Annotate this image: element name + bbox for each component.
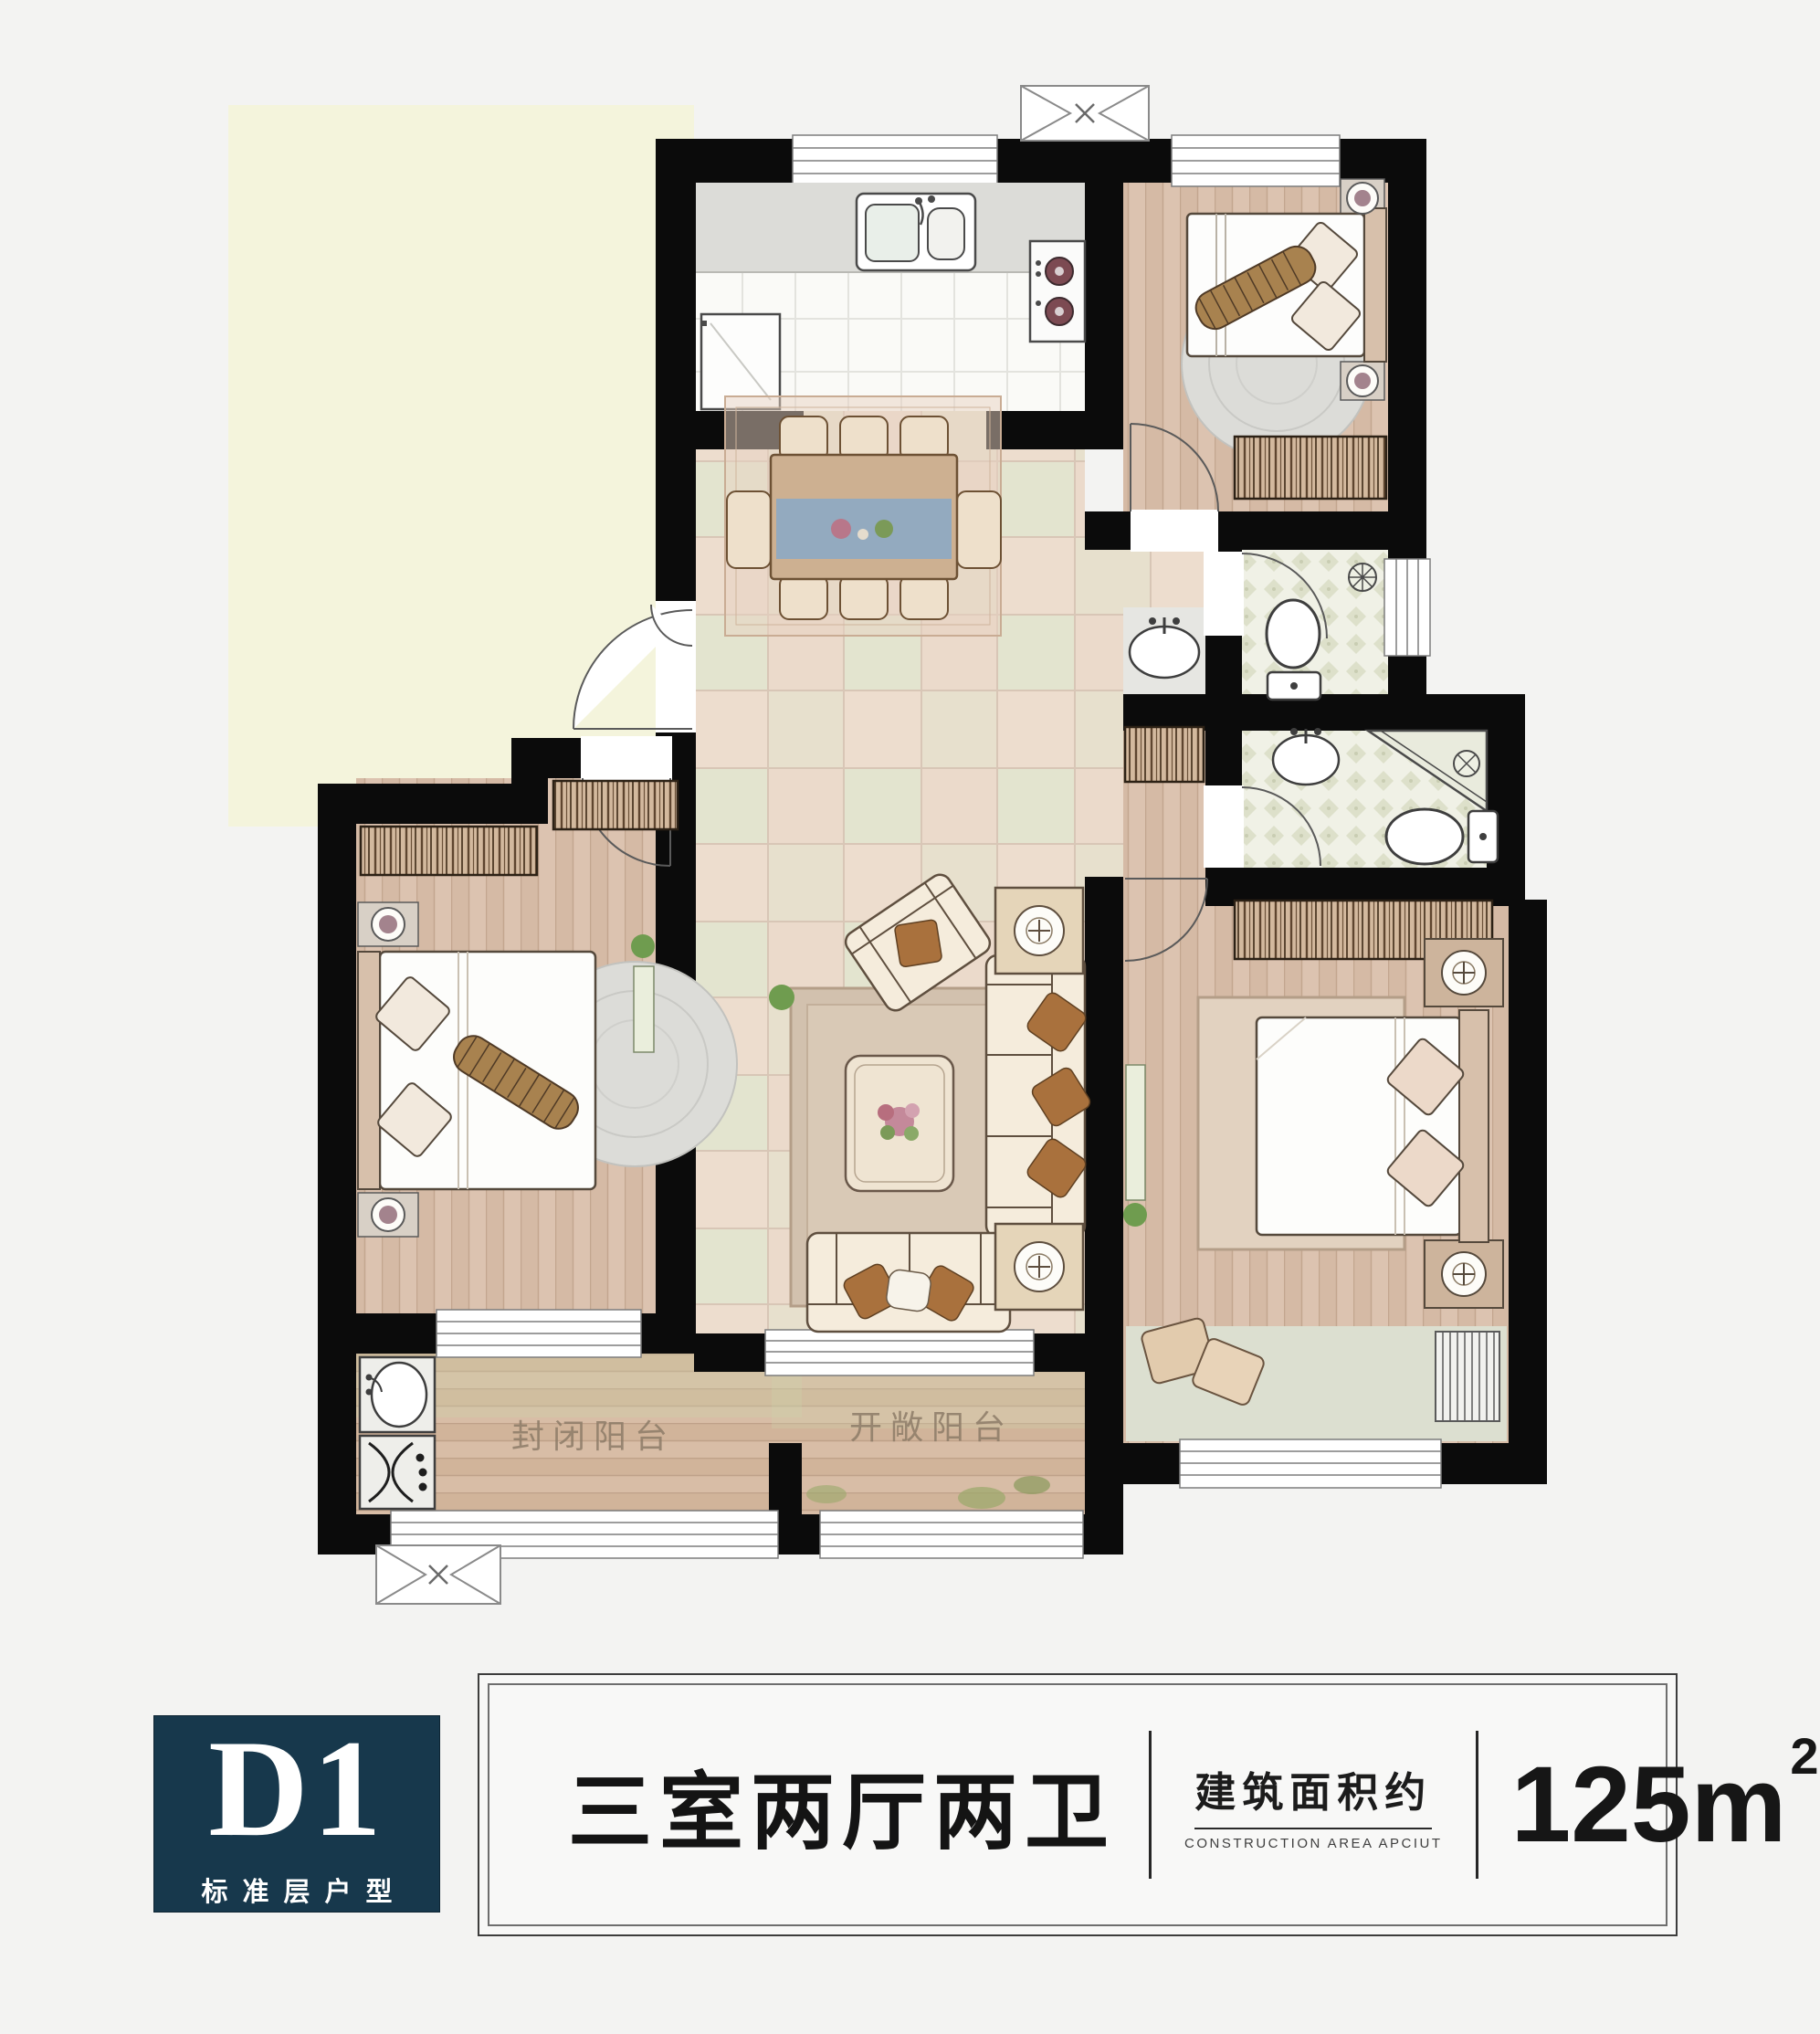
plant-icon [1123,1203,1147,1227]
plant-icon [631,934,655,958]
dresser [634,966,654,1052]
grass-icon [958,1487,1005,1509]
grass-icon [806,1485,847,1503]
bedroom3-wardrobe-b [553,781,678,829]
side-table-lamp-bottom [995,1224,1083,1310]
area-label-cn: 建筑面积约 [1194,1759,1432,1829]
divider [1476,1731,1478,1879]
washbasin-icon [1130,627,1199,678]
bedroom2-wardrobe [1235,437,1386,499]
master-bed [1257,1010,1489,1242]
refrigerator-icon [701,314,780,409]
area-superscript: 2 [1790,1731,1818,1782]
area-label-en: CONSTRUCTION AREA APCIUT [1184,1836,1443,1851]
open-balcony-bottom-window [820,1511,1083,1558]
info-inner: 三室两厅两卫 建筑面积约 CONSTRUCTION AREA APCIUT 12… [488,1683,1667,1926]
divider [1149,1731,1152,1879]
master-window [1180,1439,1441,1488]
unit-badge: D1 标准层户型 [153,1715,440,1913]
dining-area [725,396,1001,636]
sofa-loveseat [807,1233,1010,1332]
open-balcony-label: 开敞阳台 [849,1408,1014,1446]
toilet-icon [1267,600,1320,700]
side-table-lamp-top [995,888,1083,974]
unit-caption: 标准层户型 [201,1871,406,1909]
bedroom3-balcony-window [437,1310,641,1357]
corridor-floor [1085,550,1123,877]
tv-cabinet [1126,1065,1145,1200]
floorplan-page: 封闭阳台 开敞阳台 D1 标准层户型 三室两厅两卫 建筑面积约 CONSTRUC… [0,0,1820,2034]
ac-unit-top-icon [1021,86,1149,141]
exterior-courtyard [228,105,694,827]
layout-title: 三室两厅两卫 [568,1744,1116,1866]
unit-code: D1 [208,1719,385,1858]
washing-machine-icon [360,1436,435,1509]
kitchen-sink-icon [857,194,975,270]
area-number: 125m [1511,1751,1787,1859]
bedroom2-window [1172,135,1340,186]
enclosed-balcony-label: 封闭阳台 [511,1417,676,1455]
toilet-icon [1386,809,1498,864]
coffee-table [846,1056,953,1191]
sofa-three-seat [986,955,1092,1237]
area-value: 125m2 [1511,1751,1819,1859]
ac-unit-bottom-icon [376,1545,500,1604]
bath1-window [1384,559,1430,656]
info-box: 三室两厅两卫 建筑面积约 CONSTRUCTION AREA APCIUT 12… [478,1673,1678,1936]
bedroom2-bed [1187,208,1386,362]
bedroom3-bed [358,952,595,1189]
area-label-block: 建筑面积约 CONSTRUCTION AREA APCIUT [1184,1759,1443,1851]
nook-wardrobe [1125,727,1204,782]
balcony-door-window [765,1330,1034,1375]
plant-icon [769,985,794,1010]
grass-icon [1014,1476,1050,1494]
stove-icon [1030,241,1085,342]
table-runner [776,499,952,559]
shower-head-icon [1349,564,1376,591]
radiator-icon [1436,1332,1499,1421]
bedroom3-wardrobe-a [361,827,537,875]
balcony-basin-icon [360,1357,435,1432]
kitchen-window [793,135,997,186]
